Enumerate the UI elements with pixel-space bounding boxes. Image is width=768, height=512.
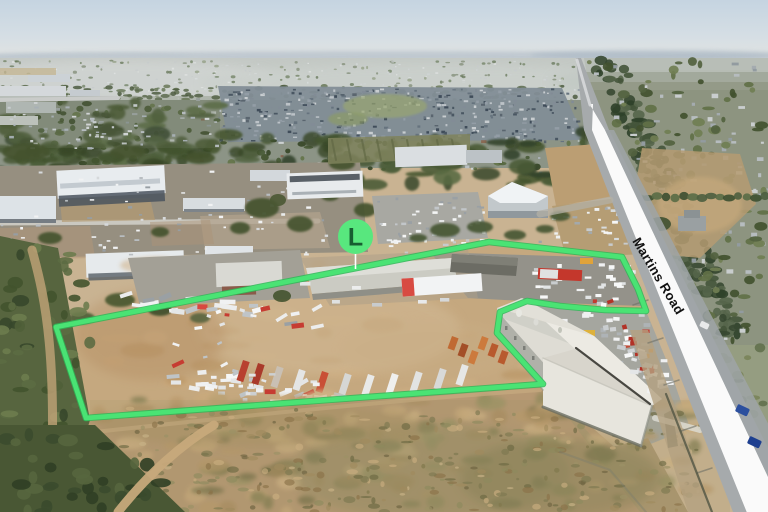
svg-text:L: L (348, 224, 363, 252)
